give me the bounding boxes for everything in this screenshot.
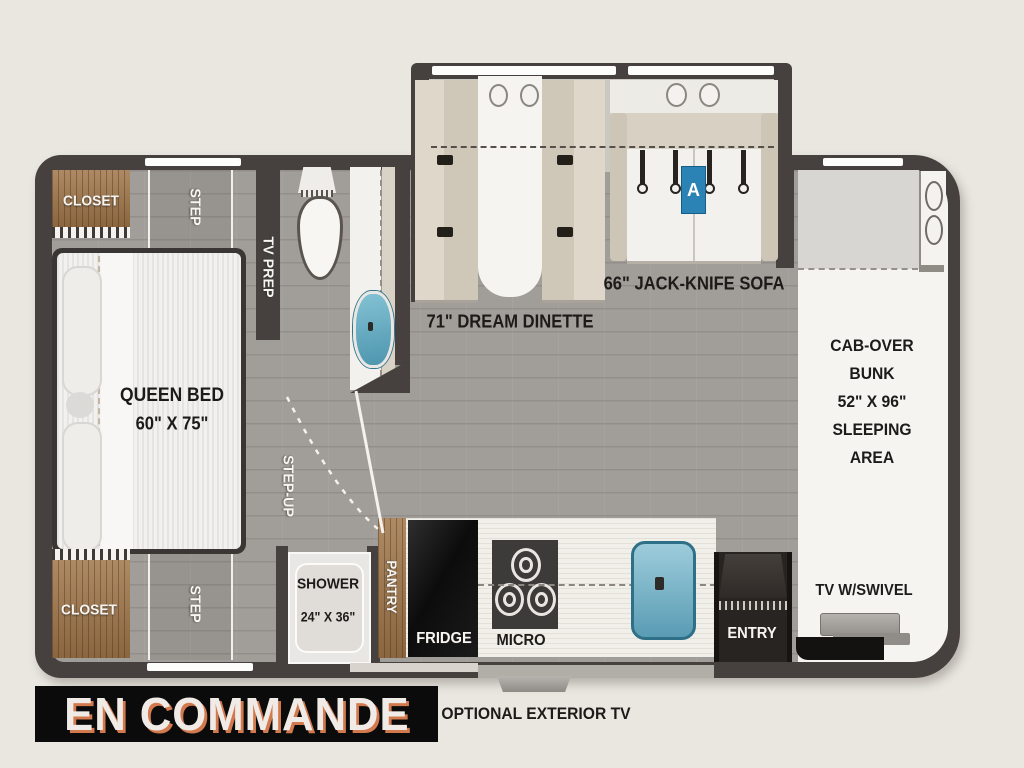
step-corridor-edge [231,554,233,660]
seat-clip-icon [557,227,573,237]
shower-label-line2: 24" X 36" [301,610,356,625]
entry-label: ENTRY [727,625,776,643]
cab-bunk-label-line: AREA [850,444,894,472]
step-corridor-edge [148,170,150,248]
cab-console-bar [919,265,944,272]
kitchen-sink [631,541,696,640]
wall-segment [776,168,794,268]
window [432,66,616,75]
seat-clip-icon [437,155,453,165]
window [823,158,903,166]
cab-bunk-label-line: BUNK [849,360,894,388]
step-top-label: STEP [187,188,204,225]
burner-icon [495,583,524,616]
closet-top-label: CLOSET [63,193,119,210]
entry-rail [787,552,792,662]
seat-belt-icon [640,150,645,184]
bed-label-line1: QUEEN BED [120,385,224,407]
window [145,158,241,166]
step-corridor-edge [148,554,150,660]
cup-holder-icon [925,215,943,245]
seat-clip-icon [557,155,573,165]
entry-hatch [719,601,787,610]
sink-faucet-icon [655,577,664,590]
sofa-label: 66" JACK-KNIFE SOFA [604,274,785,295]
pillow-notch [66,392,94,418]
pantry-label: PANTRY [384,560,400,613]
sofa-position-badge: A [681,166,706,214]
exterior-tv-bracket [497,676,571,692]
cab-bunk-label-line: CAB-OVER [830,332,913,360]
cab-bunk-label: CAB-OVER BUNK 52" X 96" SLEEPING AREA [806,332,938,472]
step-up-label: STEP-UP [280,455,297,517]
sofa-armrest [610,113,627,261]
sofa-armrest [761,113,778,261]
cup-holder-icon [925,181,943,211]
cab-bunk-label-line: SLEEPING [832,416,911,444]
cab-edge-trim [796,637,884,660]
dinette-bench-seat [542,80,574,303]
exterior-trim-light [350,663,478,672]
shower-label-line1: SHOWER [297,576,359,593]
order-banner: EN COMMANDE [35,686,438,742]
bed-pillow [62,266,102,396]
bed-label-line2: 60" X 75" [136,414,209,435]
cup-holder-icon [699,83,720,107]
cup-holder-icon [666,83,687,107]
window [147,663,253,671]
micro-label: MICRO [496,632,545,650]
closet-bottom-hatch [52,549,130,560]
dinette-label: 71" DREAM DINETTE [426,312,593,333]
dinette-bench-back [574,80,605,303]
slide-out-edge-dashes [431,146,774,148]
seat-belt-icon [741,150,746,184]
step-corridor-edge [231,170,233,248]
sofa-head-strip [610,80,778,113]
cab-bunk-label-line: 52" X 96" [838,388,907,416]
fridge-label: FRIDGE [416,630,472,648]
burner-icon [511,548,541,582]
seat-belt-icon [673,150,678,184]
seat-belt-icon [707,150,712,184]
cup-holder-icon [520,84,539,107]
cab-dash-line [798,268,918,270]
order-banner-label: EN COMMANDE [64,687,409,741]
tv-prep-label: TV PREP [260,237,277,298]
bathroom-sink [353,291,394,368]
entry-door-panel [719,554,787,598]
window [628,66,774,75]
cab-section [798,170,919,269]
sofa-back [610,113,778,149]
cup-holder-icon [489,84,508,107]
burner-icon [527,583,556,616]
seat-clip-icon [437,227,453,237]
dinette-table [478,76,542,297]
closet-bottom-label: CLOSET [61,602,117,619]
bed-pillow [62,422,102,552]
wall-segment [395,167,410,365]
dinette-bench-seat [444,80,478,303]
sink-drain-icon [368,322,373,331]
step-bottom-label: STEP [187,585,204,622]
cab-tv-label: TV W/SWIVEL [815,582,912,600]
dinette-bench-back [415,80,444,303]
entry-rail [714,552,719,662]
optional-tv-note: OPTIONAL EXTERIOR TV [441,704,630,724]
wall-segment [276,546,288,662]
floorplan-canvas: A CLOSET STEP TV PREP QUEEN BED 60" X 75… [0,0,1024,768]
closet-top-hatch [52,227,130,238]
